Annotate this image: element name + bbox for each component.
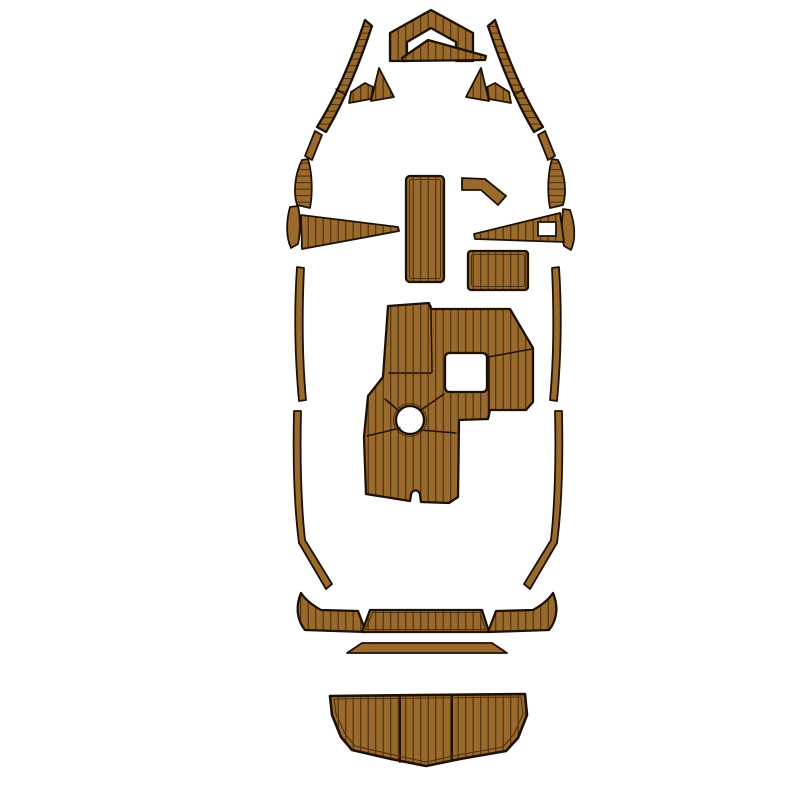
- starboard-console-pad: [468, 251, 528, 290]
- starboard-bow-rail-upper: [488, 20, 543, 132]
- port-bow-rail-lower: [305, 131, 322, 160]
- starboard-step-wedge-pad: [474, 213, 564, 242]
- starboard-small-triangle-pad: [466, 68, 489, 101]
- center-walkway-pad: [406, 176, 444, 282]
- stern-trim-strip: [347, 643, 507, 653]
- starboard-small-wedge-pad: [487, 83, 511, 103]
- port-side-tread-pad: [295, 159, 312, 208]
- swim-platform-pad: [330, 694, 527, 766]
- starboard-bow-rail-lower: [538, 131, 555, 160]
- cockpit-group: [364, 303, 533, 503]
- port-side-tread-lower: [287, 206, 300, 248]
- port-gunwale-strip-lower: [294, 411, 332, 589]
- port-small-triangle-pad: [371, 68, 394, 101]
- midship-group: [301, 176, 564, 290]
- starboard-gunwale-strip-lower: [524, 411, 562, 589]
- port-bow-rail-upper: [317, 20, 372, 132]
- starboard-side-tread-pad: [548, 159, 565, 208]
- starboard-elbow-pad: [462, 178, 506, 205]
- port-small-wedge-pad: [349, 83, 373, 103]
- port-step-wedge-pad: [301, 215, 399, 249]
- boat-decking-diagram: [0, 0, 800, 800]
- transom-corner-starboard-pad: [488, 593, 556, 632]
- starboard-side-tread-lower: [562, 209, 574, 250]
- starboard-gunwale-strip-upper: [550, 267, 561, 401]
- transom-center-pad: [362, 610, 489, 632]
- transom-corner-port-pad: [298, 593, 366, 632]
- port-gunwale-strip-upper: [295, 267, 306, 401]
- boat-decking-svg: [0, 0, 800, 800]
- cockpit-hatch-ring: [394, 404, 427, 437]
